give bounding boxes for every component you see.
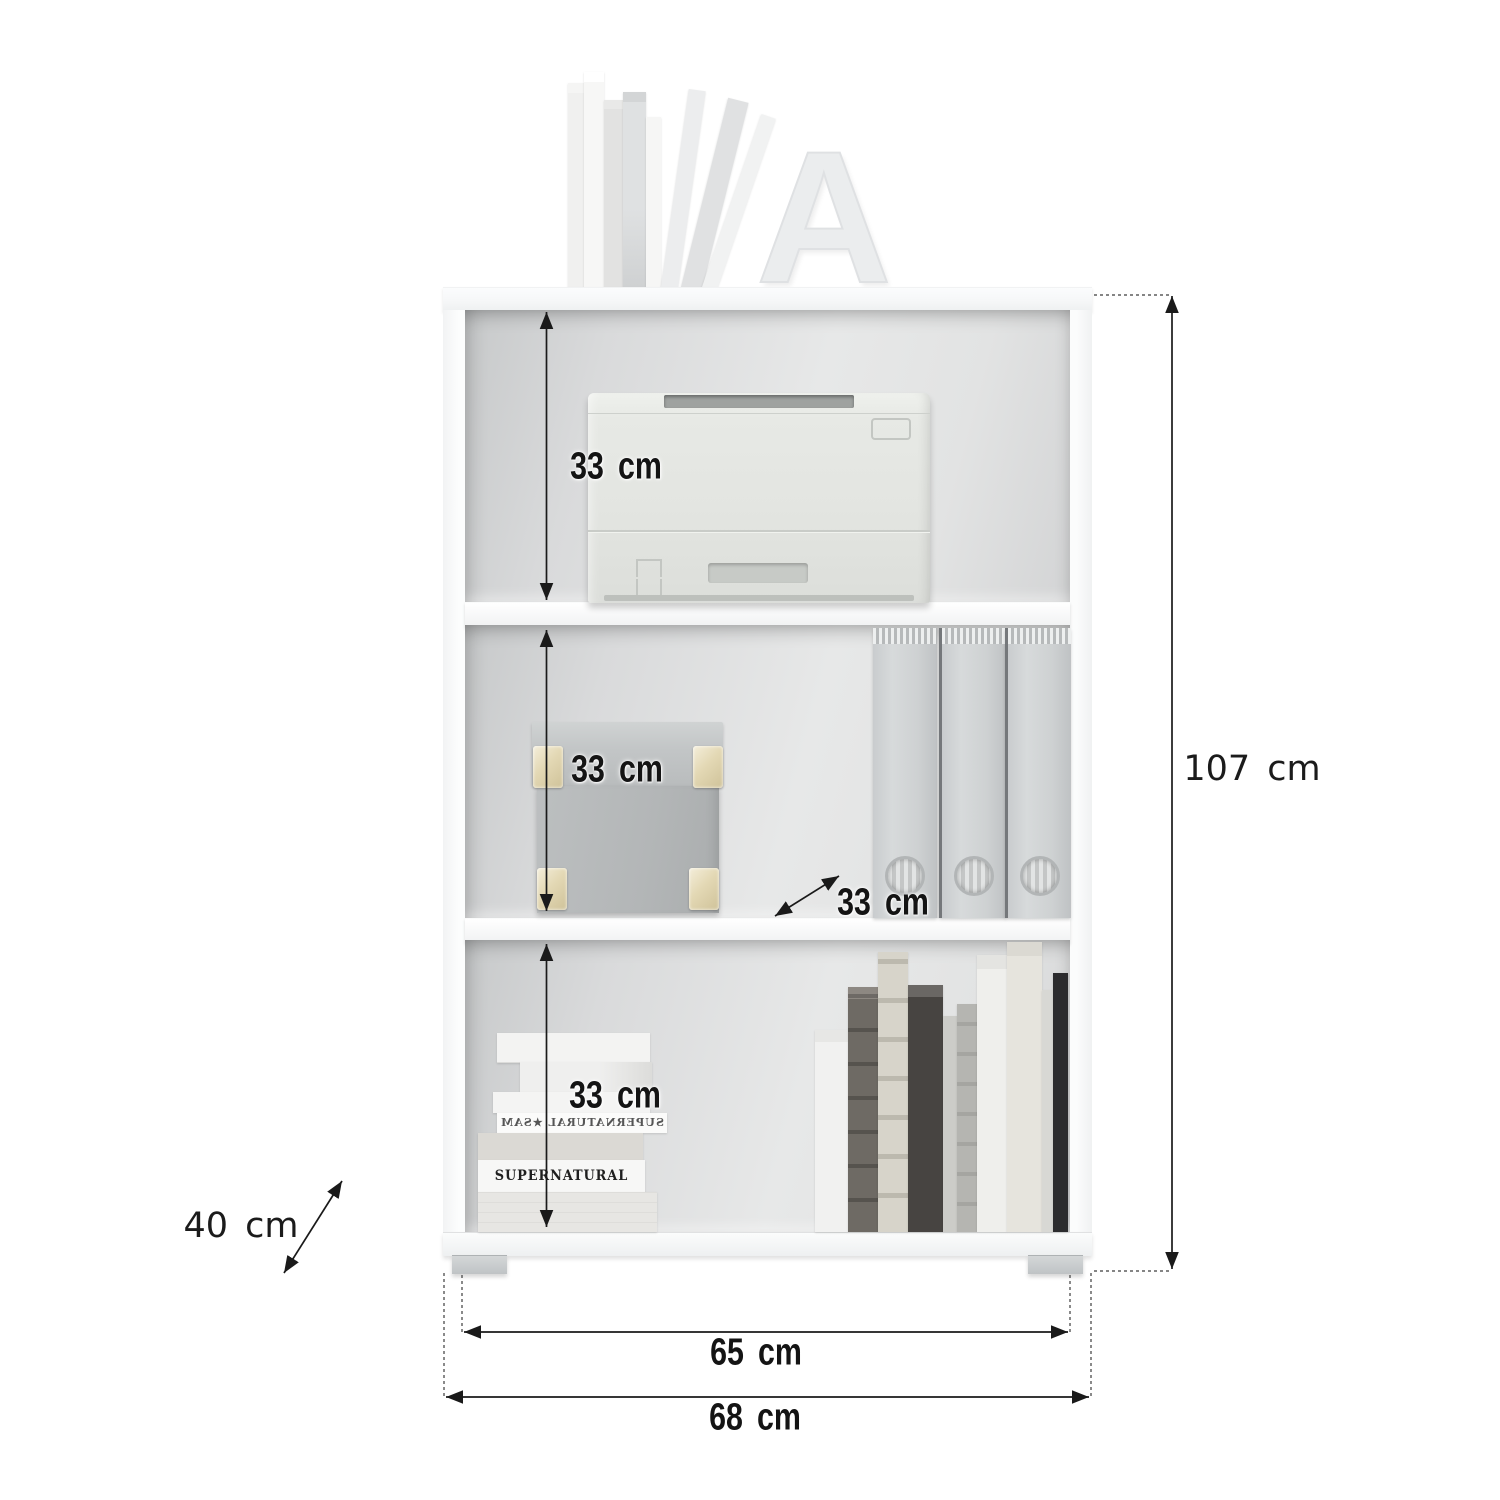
dim-label-bottom-compartment-height: 33 cm [569, 1075, 661, 1118]
binder-ring-hole [954, 856, 994, 896]
dim-label-inner-width: 65 cm [710, 1332, 802, 1375]
binder [1005, 628, 1071, 918]
printer-button [871, 418, 911, 440]
printer-base [604, 595, 914, 601]
cabinet-foot-left [452, 1255, 507, 1274]
storage-box-corner [533, 746, 563, 788]
dim-label-compartment-depth: 33 cm [837, 882, 929, 925]
standing-book [848, 987, 878, 1232]
printer-seam [588, 413, 930, 414]
decor-letter-a: A [756, 148, 864, 288]
dim-label-total-width: 68 cm [709, 1397, 801, 1440]
dim-label-middle-compartment-height: 33 cm [571, 749, 663, 792]
binder [939, 628, 1006, 918]
cabinet-right-panel [1070, 310, 1092, 1255]
top-book [568, 83, 584, 287]
dim-label-total-height: 107 cm [1183, 749, 1320, 789]
storage-box-corner [689, 868, 719, 910]
top-book [623, 92, 646, 287]
storage-box-corner [537, 868, 567, 910]
stacked-book [497, 1033, 650, 1063]
standing-book [943, 1016, 957, 1232]
printer-seam [588, 530, 930, 533]
printer-output-tray [664, 395, 854, 408]
binder-pages [942, 628, 1006, 644]
top-book [604, 100, 623, 287]
stacked-book [478, 1192, 657, 1232]
standing-book [977, 955, 1007, 1232]
top-book [646, 117, 661, 287]
standing-book [1042, 990, 1053, 1232]
standing-book [815, 1030, 848, 1232]
shelf-board-1 [465, 602, 1070, 627]
standing-book [878, 952, 908, 1232]
cabinet-left-panel [443, 310, 465, 1255]
stacked-book [478, 1133, 643, 1160]
dim-label-total-depth: 40 cm [184, 1206, 299, 1246]
product-dimension-diagram: A SUPERNATURAL ★SAM & [0, 0, 1500, 1500]
dim-label-top-compartment-height: 33 cm [570, 446, 662, 489]
cabinet-top-board [443, 287, 1092, 312]
binder-ring-hole [1020, 856, 1060, 896]
standing-book [1007, 942, 1042, 1232]
printer-drawer-handle [708, 563, 808, 583]
standing-book [1053, 973, 1068, 1232]
printer [588, 393, 930, 603]
storage-box-corner [693, 746, 723, 788]
binder [873, 628, 937, 918]
printer-emblem [636, 559, 662, 577]
stacked-book: SUPERNATURAL ★SAM & DIN [478, 1160, 645, 1192]
standing-book [908, 985, 943, 1232]
top-book [584, 72, 604, 287]
standing-book [957, 1004, 977, 1232]
binder-pages [873, 628, 937, 644]
cabinet-bottom-board [443, 1232, 1092, 1256]
binder-pages [1008, 628, 1071, 644]
cabinet-foot-right [1028, 1255, 1083, 1274]
